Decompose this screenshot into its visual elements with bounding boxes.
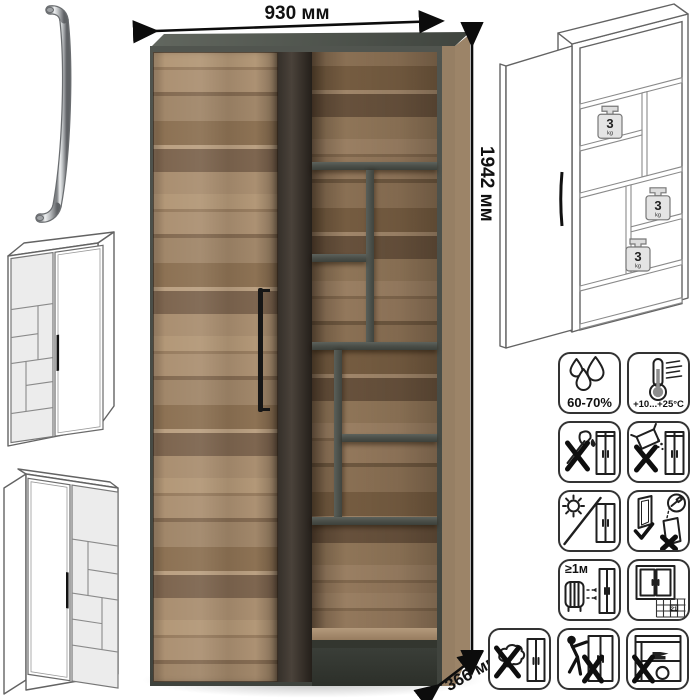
shelf-4: [342, 434, 437, 442]
shelf-2: [312, 254, 366, 262]
shelving-opening: [312, 52, 437, 648]
no-direct-sunlight-icon: [558, 490, 621, 552]
min-heat-distance-label: ≥1м: [565, 562, 588, 576]
bottom-board: [312, 628, 437, 640]
no-dragging-icon: [557, 628, 620, 690]
divider-1: [366, 170, 374, 348]
handle-mount-top: [262, 289, 270, 292]
shelf-1: [312, 162, 437, 170]
humidity-icon: 60-70%: [558, 352, 621, 414]
assembly-wireframe-open-door: 3 kg 3 kg 3 kg: [492, 0, 697, 352]
wireframe-view-left-shelves: [0, 226, 130, 466]
handle-detail-drawing: [24, 2, 90, 226]
wireframe-door-handle: [561, 172, 562, 226]
shelf-load-badge: 3 kg: [626, 239, 650, 271]
handle-mount-bottom: [262, 408, 270, 411]
plinth: [312, 648, 437, 686]
svg-text:3: 3: [634, 249, 641, 264]
acclimation-days-label: 21: [671, 606, 678, 612]
shelf-load-badge: 3 kg: [646, 188, 670, 220]
svg-text:kg: kg: [655, 212, 661, 218]
ventilation-acclimation-icon: 21: [627, 559, 690, 621]
no-wet-cleaning-icon: [488, 628, 551, 690]
heat-distance-icon: ≥1м: [558, 559, 621, 621]
cabinet-front: [150, 46, 455, 686]
svg-text:kg: kg: [607, 131, 613, 137]
base-strip: [312, 640, 437, 648]
wireframe-view-right-shelves: [0, 462, 130, 700]
temperature-range-label: +10...+25°C: [629, 399, 688, 410]
no-abrasives-icon: [627, 421, 690, 483]
width-dimension-label: 930 мм: [232, 3, 362, 25]
divider-2: [334, 350, 342, 517]
center-partition: [278, 52, 312, 682]
shelf-load-badge: 3 kg: [598, 106, 622, 138]
svg-text:kg: kg: [635, 264, 641, 270]
no-sharp-impact-icon: [558, 421, 621, 483]
shelf-3: [312, 342, 437, 350]
humidity-range-label: 60-70%: [560, 395, 619, 410]
right-stile: [442, 46, 455, 686]
door-handle: [258, 288, 263, 412]
door-handling-icon: [627, 490, 690, 552]
svg-text:3: 3: [606, 116, 613, 131]
shelf-5: [312, 517, 437, 525]
no-overload-icon: [626, 628, 689, 690]
svg-text:3: 3: [654, 198, 661, 213]
product-infographic: 930 мм 1942 мм 366 мм: [0, 0, 700, 700]
temperature-icon: +10...+25°C: [627, 352, 690, 414]
